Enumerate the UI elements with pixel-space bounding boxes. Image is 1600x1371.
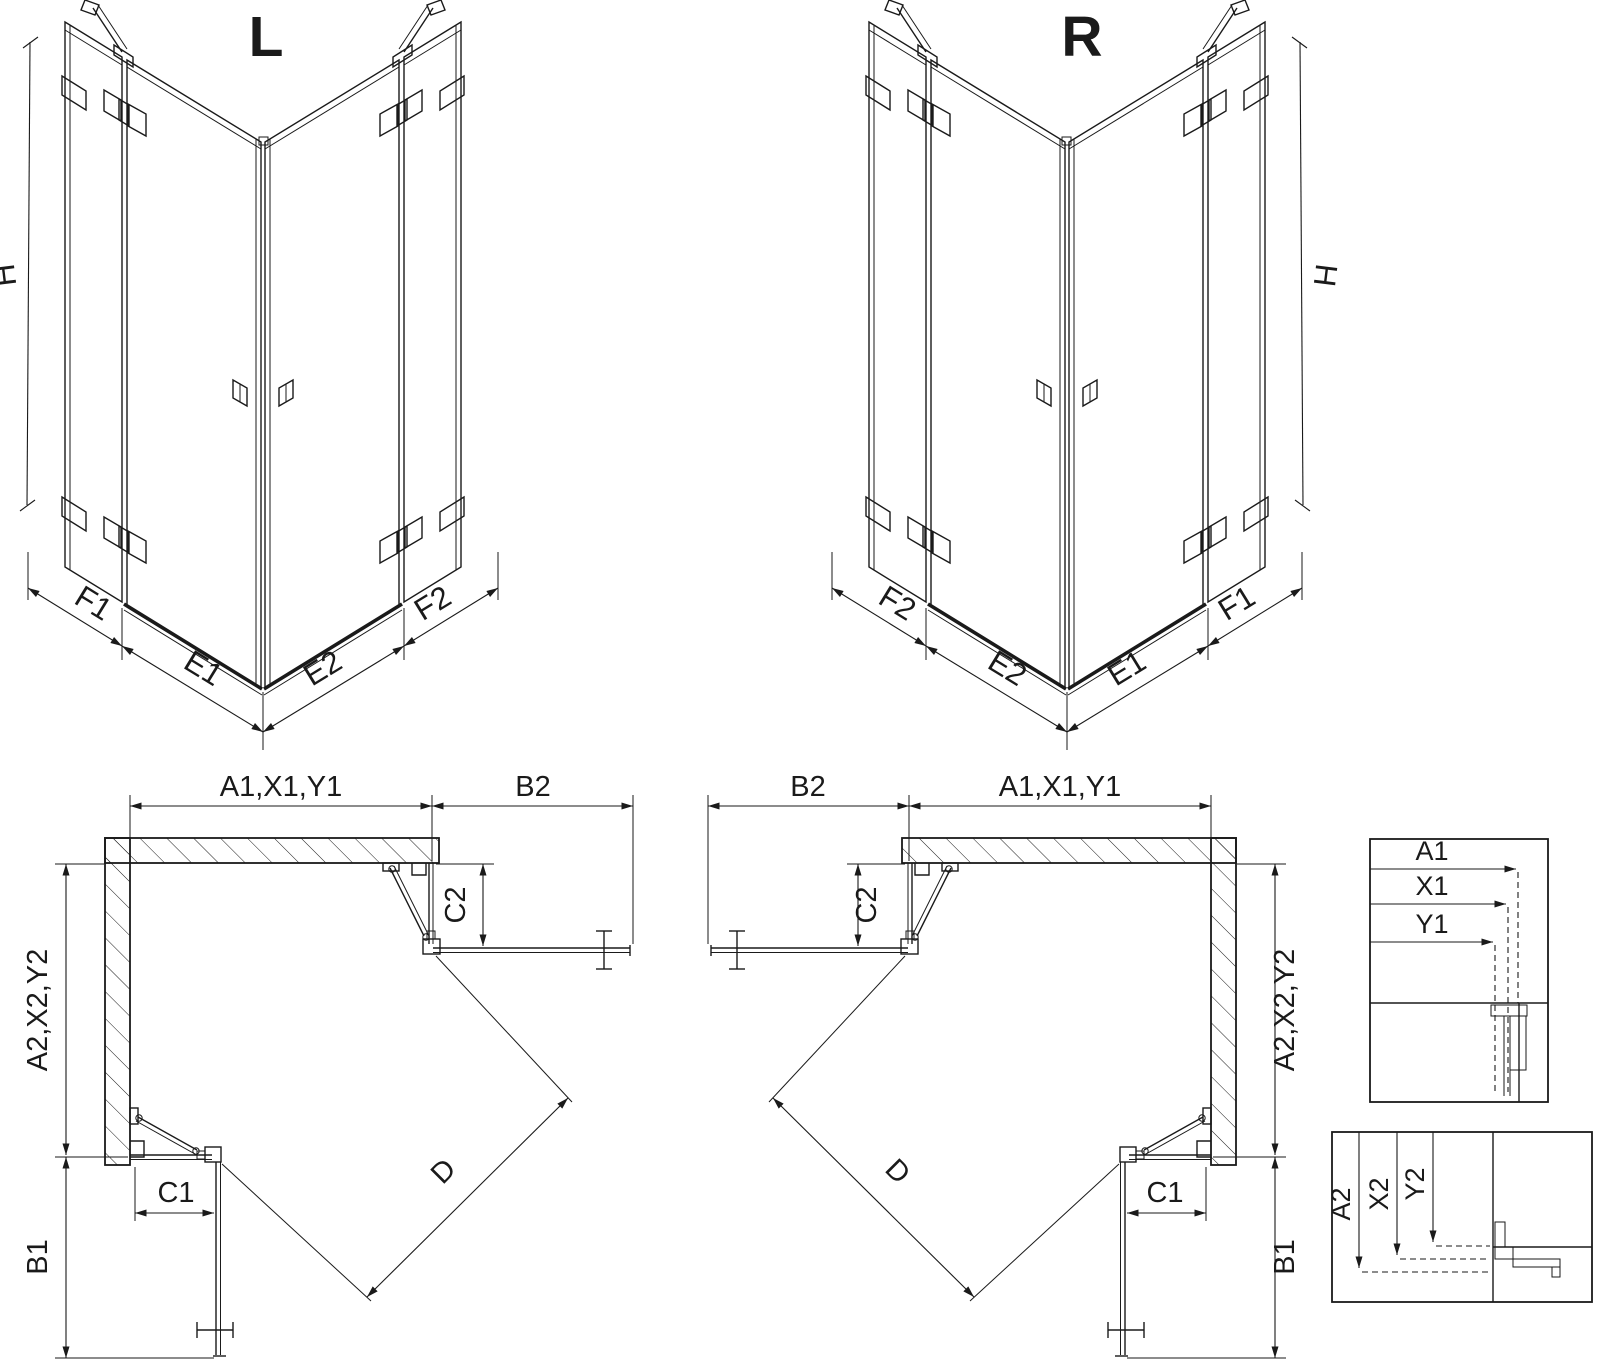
label-height-left: H — [0, 262, 23, 288]
label-plan-right-b1: B1 — [1269, 1239, 1301, 1274]
label-plan-right-c2: C2 — [851, 886, 883, 923]
label-plan-right-depth: A2,X2,Y2 — [1269, 949, 1301, 1072]
label-detail-a2: A2 — [1326, 1187, 1356, 1220]
label-variant-left: L — [249, 5, 284, 69]
label-plan-right-b2: B2 — [790, 771, 825, 803]
label-plan-right-top-width: A1,X1,Y1 — [999, 771, 1122, 803]
label-detail-x2: X2 — [1364, 1177, 1394, 1210]
label-plan-left-depth: A2,X2,Y2 — [22, 949, 54, 1072]
detail-box-depths: A2 X2 Y2 — [1326, 1132, 1592, 1302]
label-plan-left-c2: C2 — [440, 886, 472, 923]
label-variant-right: R — [1061, 5, 1102, 69]
label-plan-left-b1: B1 — [22, 1239, 54, 1274]
label-detail-y1: Y1 — [1415, 909, 1448, 939]
label-f2-iso-left: F2 — [408, 579, 457, 628]
plan-view-left: A1,X1,Y1 B2 C2 A2,X2,Y2 B1 C1 D — [22, 771, 633, 1358]
label-plan-left-c1: C1 — [157, 1177, 194, 1209]
detail-box-widths: A1 X1 Y1 — [1370, 836, 1548, 1102]
label-detail-a1: A1 — [1415, 836, 1448, 866]
drawing-page: L H F1 E1 E2 F2 R H F2 E2 E1 F1 A1,X1,Y1… — [0, 0, 1600, 1371]
label-plan-left-diagonal: D — [425, 1153, 462, 1190]
label-f1-iso-left: F1 — [69, 579, 118, 628]
label-plan-left-top-width: A1,X1,Y1 — [220, 771, 343, 803]
label-f2-iso-right: F2 — [873, 579, 922, 628]
label-plan-right-diagonal: D — [879, 1153, 916, 1190]
label-f1-iso-right: F1 — [1212, 579, 1261, 628]
iso-view-right: R H F2 E2 E1 F1 — [832, 0, 1344, 750]
label-plan-right-c1: C1 — [1146, 1177, 1183, 1209]
label-plan-left-b2: B2 — [515, 771, 550, 803]
label-detail-y2: Y2 — [1400, 1167, 1430, 1200]
plan-view-right: B2 A1,X1,Y1 C2 A2,X2,Y2 B1 C1 D — [708, 771, 1301, 1358]
label-detail-x1: X1 — [1415, 871, 1448, 901]
shower-enclosure-technical-drawing: L H F1 E1 E2 F2 R H F2 E2 E1 F1 A1,X1,Y1… — [0, 0, 1600, 1371]
label-height-right: H — [1307, 262, 1344, 288]
iso-view-left: L H F1 E1 E2 F2 — [0, 0, 498, 750]
